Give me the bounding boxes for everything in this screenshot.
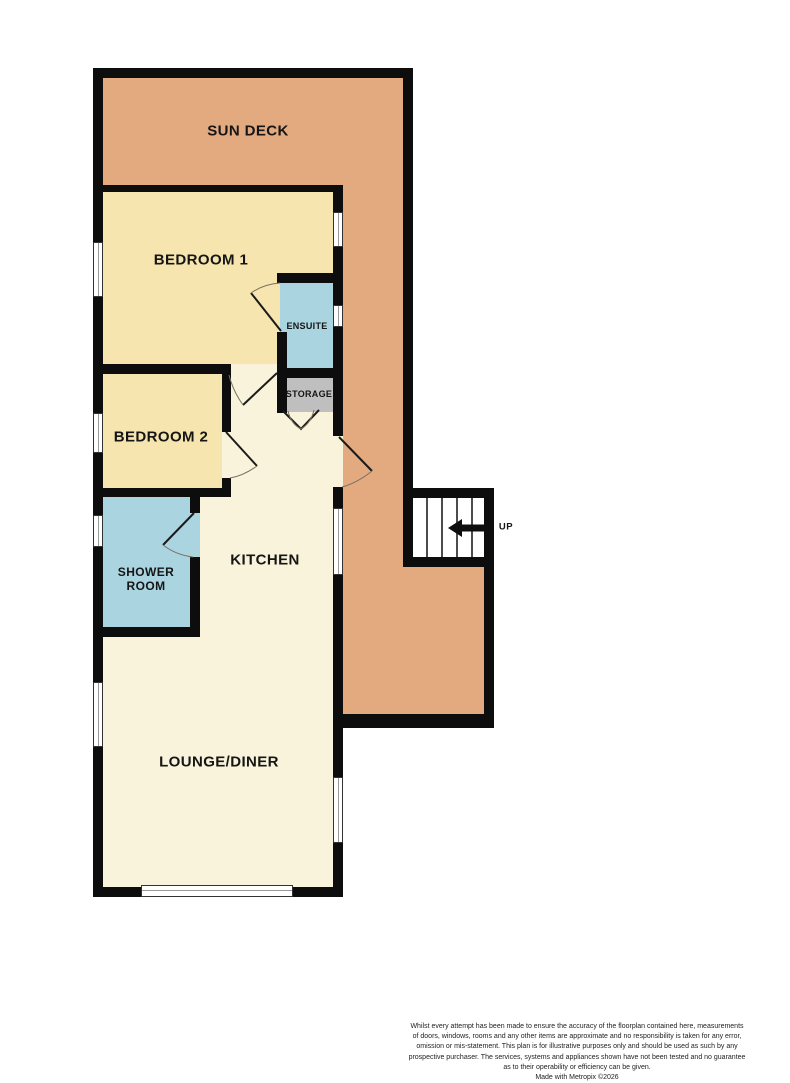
wall-stairs-top	[403, 488, 494, 498]
room-sun-deck-corridor	[343, 185, 403, 567]
label-bedroom-1: BEDROOM 1	[154, 251, 248, 268]
disclaimer-line: of doors, windows, rooms and any other i…	[287, 1032, 790, 1042]
label-storage: STORAGE	[286, 389, 332, 399]
disclaimer-line: Whilst every attempt has been made to en…	[287, 1022, 790, 1032]
label-kitchen: KITCHEN	[230, 551, 299, 568]
disclaimer: Whilst every attempt has been made to en…	[287, 1022, 790, 1083]
wall-sundeck-bedroom1	[93, 185, 343, 192]
label-shower-room: SHOWER ROOM	[118, 566, 174, 594]
wall-sundeck-bottom	[335, 714, 494, 728]
wall-shower-bottom	[93, 627, 200, 637]
window-kitchen-right	[333, 508, 343, 575]
wall-shower-right-upper	[190, 497, 200, 513]
staircase	[413, 498, 484, 557]
label-sun-deck: SUN DECK	[207, 122, 289, 139]
window-lounge-bottom	[141, 885, 293, 897]
window-bedroom2-left	[93, 413, 103, 453]
wall-main-right-2	[333, 247, 343, 305]
wall-shower-right-lower	[190, 557, 200, 637]
disclaimer-line: omission or mis-statement. This plan is …	[287, 1042, 790, 1052]
wall-main-right-5	[333, 575, 343, 777]
wall-right-lower	[484, 488, 494, 728]
label-stairs-up: UP	[499, 523, 513, 534]
window-bedroom1-left	[93, 242, 103, 297]
room-shower	[103, 497, 190, 627]
wall-bedroom2-right-upper	[222, 364, 231, 432]
wall-top	[93, 68, 413, 78]
window-bedroom1-right	[333, 212, 343, 247]
room-sun-deck-lower	[343, 567, 484, 714]
window-lounge-right	[333, 777, 343, 843]
wall-bedroom2-bottom	[93, 488, 230, 497]
window-lounge-left	[93, 682, 103, 747]
wall-left	[93, 68, 103, 897]
window-shower-left	[93, 515, 103, 547]
label-lounge-diner: LOUNGE/DINER	[159, 753, 279, 770]
label-bedroom-2: BEDROOM 2	[114, 428, 208, 445]
wall-main-right-1	[333, 185, 343, 212]
disclaimer-line: as to their operability or efficiency ca…	[287, 1063, 790, 1073]
label-ensuite: ENSUITE	[286, 321, 327, 331]
credit-line: Made with Metropix ©2026	[287, 1073, 790, 1083]
window-ensuite-right	[333, 305, 343, 327]
disclaimer-line: prospective purchaser. The services, sys…	[287, 1053, 790, 1063]
wall-bedroom1-bottom	[93, 364, 230, 374]
wall-stairs-bottom	[403, 557, 494, 567]
wall-main-right-4	[333, 487, 343, 508]
doorway-gap-corridor	[333, 436, 343, 487]
floorplan: SUN DECK BEDROOM 1 ENSUITE STORAGE BEDRO…	[0, 0, 790, 1080]
doorway-gap-shower	[190, 513, 200, 557]
wall-main-right-3	[333, 327, 343, 436]
